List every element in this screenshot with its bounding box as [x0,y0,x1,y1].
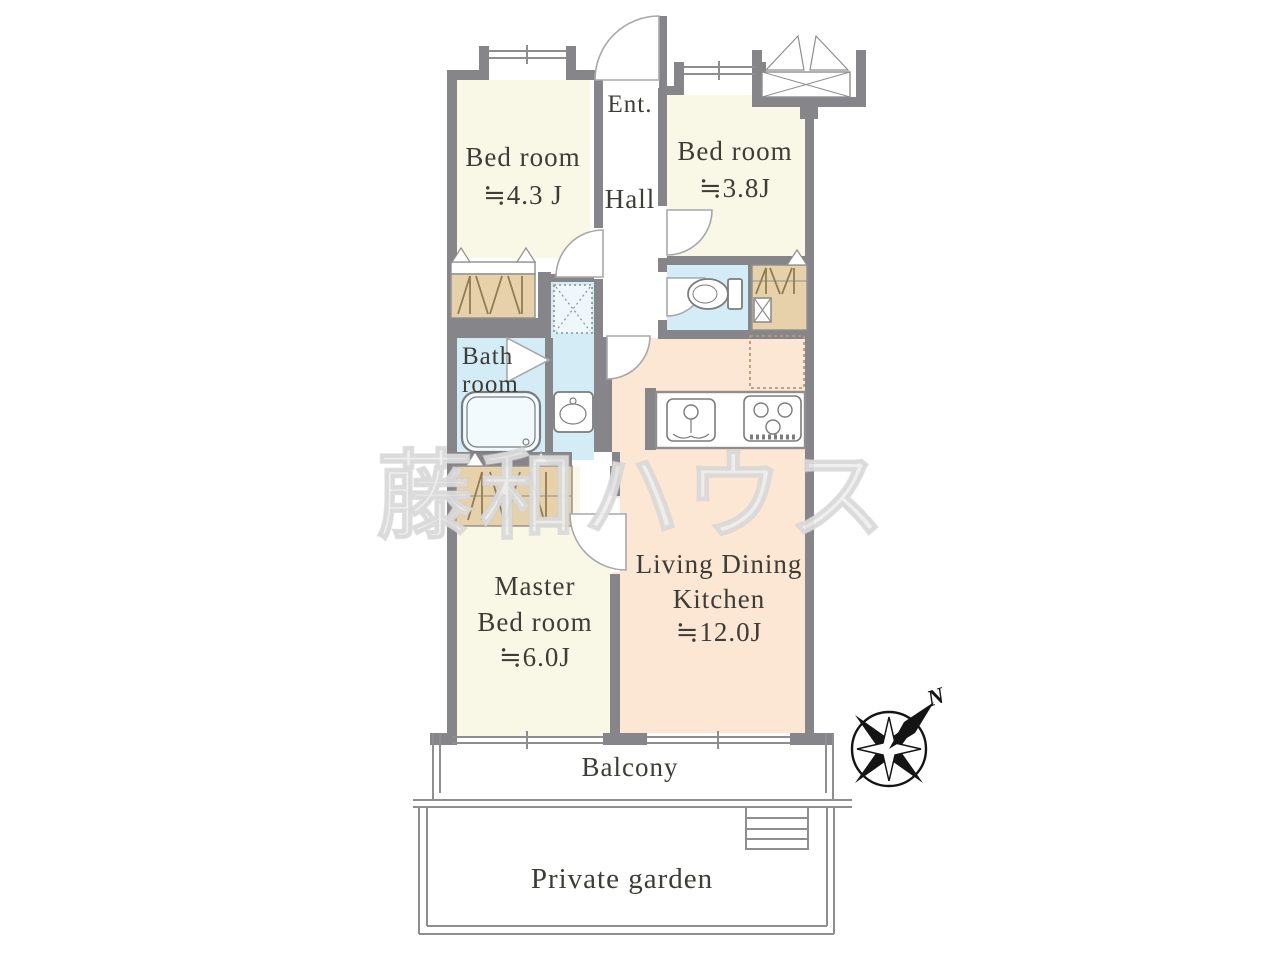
wall-segment [447,70,457,745]
closet-shelf [451,262,535,274]
wall-segment [603,733,647,745]
master-bedroom-label-line2: Bed room [477,607,592,637]
door-swing-mark [810,36,848,70]
toilet-icon [688,279,742,309]
wall-segment [447,318,551,338]
wall-segment [674,62,684,95]
kitchen-sink-icon [667,399,715,441]
balcony-label: Balcony [582,752,679,782]
washing-machine-pan-icon [554,285,592,333]
ldk-label-line1: Living Dining [636,549,803,579]
door-gap [658,274,667,318]
washbasin-icon [554,392,593,432]
watermark: 藤和ハウス [377,440,892,553]
bedroom-1-size: ≒4.3 J [483,180,563,210]
window-ldk [647,731,790,749]
garden-steps [746,807,808,849]
north-needle [889,702,934,749]
master-bedroom-size: ≒6.0J [499,642,571,672]
floor-plan-page: N Bed room ≒4.3 J Ent. Hall Bed room ≒3.… [0,0,1280,960]
wall-segment [659,16,667,86]
entrance-door-arc [595,16,659,80]
meter-box [762,36,850,97]
wall-segment [479,46,489,80]
stove-icon [744,396,801,441]
closet-bedroom-1 [451,248,535,318]
wall-segment [752,97,866,107]
compass-rose: N [852,682,949,786]
bathroom-label-line2: room [462,371,519,398]
door-gap [658,206,667,258]
wall-segment [594,277,603,337]
wall-segment [856,50,866,107]
window-bedroom-2 [684,61,756,80]
door-swing-mark [766,36,804,70]
wall-segment [594,74,603,230]
wall-segment [610,574,620,736]
master-bedroom-label-line1: Master [495,571,576,601]
ldk-label-line2: Kitchen [673,584,765,614]
floor-plan-svg: N Bed room ≒4.3 J Ent. Hall Bed room ≒3.… [0,0,1280,960]
wall-segment [658,256,808,265]
bedroom-1-label: Bed room [465,142,580,172]
wall-segment [805,107,814,740]
bathroom-label-line1: Bath [462,343,513,370]
entrance-label: Ent. [608,91,653,118]
bedroom-2-label: Bed room [677,136,792,166]
wall-segment [658,330,814,339]
pipe-space [754,298,771,322]
wall-segment [658,88,667,208]
window-bedroom-1 [489,45,566,64]
ldk-size: ≒12.0J [676,617,762,647]
private-garden-label: Private garden [531,863,713,895]
bedroom-2-size: ≒3.8J [699,173,771,203]
wall-segment [447,70,483,80]
hall-label: Hall [605,184,656,214]
balcony-garden-divider [413,800,852,807]
